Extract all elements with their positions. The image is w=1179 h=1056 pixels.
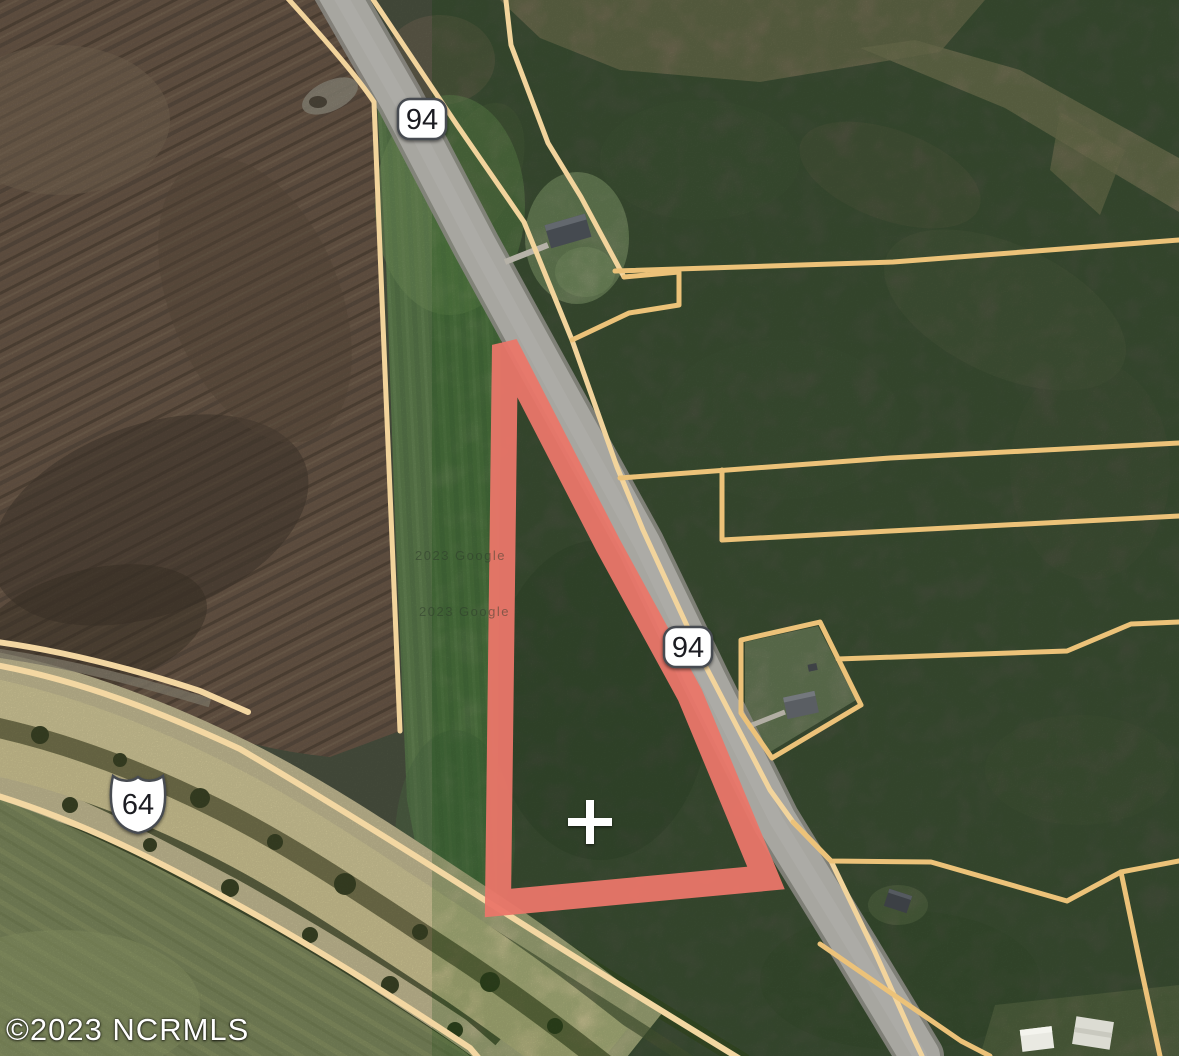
route-shield-label: 64 [122,789,154,821]
route-shield-94-top: 94 [398,99,446,139]
route-shield-us64: 64 [111,776,165,833]
route-shield-label: 94 [672,632,704,664]
route-shield-94-middle: 94 [664,627,712,667]
mls-watermark: ©2023 NCRMLS [6,1012,249,1048]
satellite-map-view[interactable]: 2023 Google 2023 Google 94 94 64 ©2023 N… [0,0,1179,1056]
house-roof [1072,1016,1114,1050]
route-shield-label: 94 [406,104,438,136]
map-canvas: 2023 Google 2023 Google 94 94 64 [0,0,1179,1056]
google-imagery-credit: 2023 Google [419,604,510,619]
house-roof [1020,1026,1054,1052]
google-imagery-credit: 2023 Google [415,548,506,563]
